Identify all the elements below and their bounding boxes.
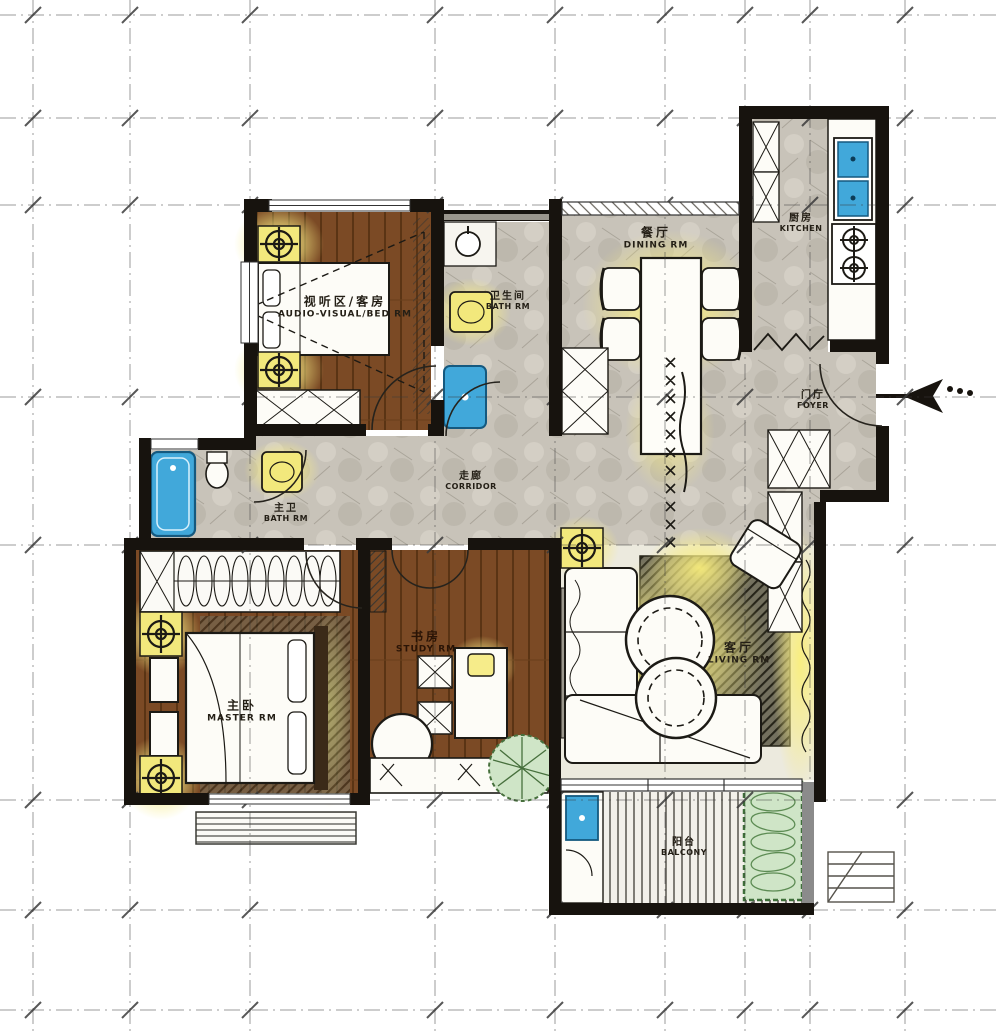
planter-shutter [196,812,356,844]
av-curtain-hatch [413,218,430,414]
toilet [206,460,228,488]
dining-chair [602,268,640,310]
potted-plant-icon [489,735,555,801]
dining-table [641,258,701,454]
corridor-shelf [562,348,608,434]
dining-window [562,202,739,215]
bath-vanity [450,292,492,332]
column-light-icon [561,528,603,568]
headboard [314,626,328,790]
bath-vanity [262,452,302,492]
nightstand [150,658,178,702]
nightstand [150,712,178,756]
entrance-arrow-icon [876,379,973,413]
desk-lamp [468,654,494,676]
drying-rack [828,852,894,902]
column-light-icon [140,612,182,656]
floor-plan-drawing [0,0,1000,1032]
dining-chair [702,318,740,360]
shoe-cabinet [768,430,830,488]
dining-chair [702,268,740,310]
washbasin-icon [456,232,480,256]
floor-plan: 视听区/客房 AUDIO-VISUAL/BED RM 卫生间 BATH RM 餐… [0,0,1000,1032]
